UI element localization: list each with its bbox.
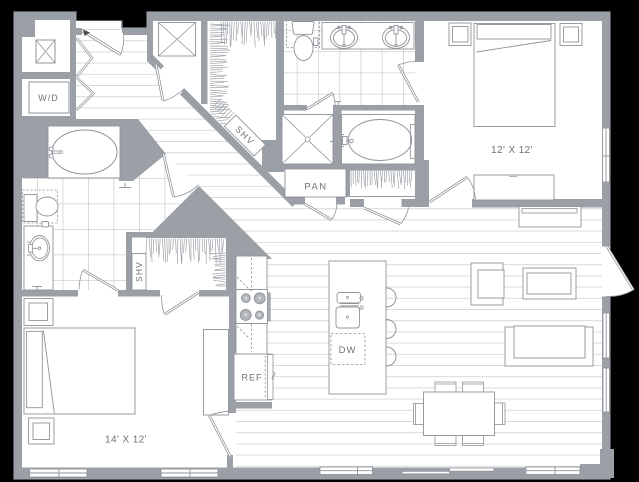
svg-text:REF: REF — [242, 373, 263, 383]
svg-text:PAN: PAN — [304, 182, 327, 193]
svg-text:12' X 12': 12' X 12' — [491, 145, 533, 156]
svg-text:SHV: SHV — [134, 261, 144, 282]
svg-text:DW: DW — [339, 345, 357, 356]
svg-text:W/D: W/D — [38, 93, 59, 103]
svg-text:14' X 12': 14' X 12' — [105, 435, 147, 446]
